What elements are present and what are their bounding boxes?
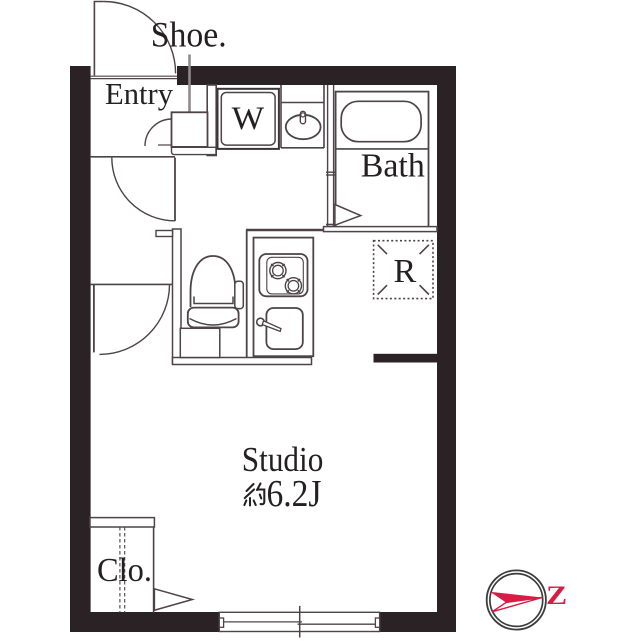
svg-text:Bath: Bath bbox=[361, 148, 425, 185]
svg-text:W: W bbox=[232, 101, 265, 137]
svg-text:R: R bbox=[394, 253, 417, 290]
svg-text:Z: Z bbox=[546, 581, 567, 610]
svg-text:Entry: Entry bbox=[105, 76, 173, 111]
svg-text:Clo.: Clo. bbox=[97, 552, 152, 589]
svg-text:Shoe.: Shoe. bbox=[151, 15, 227, 55]
svg-text:6.2J: 6.2J bbox=[267, 473, 322, 515]
